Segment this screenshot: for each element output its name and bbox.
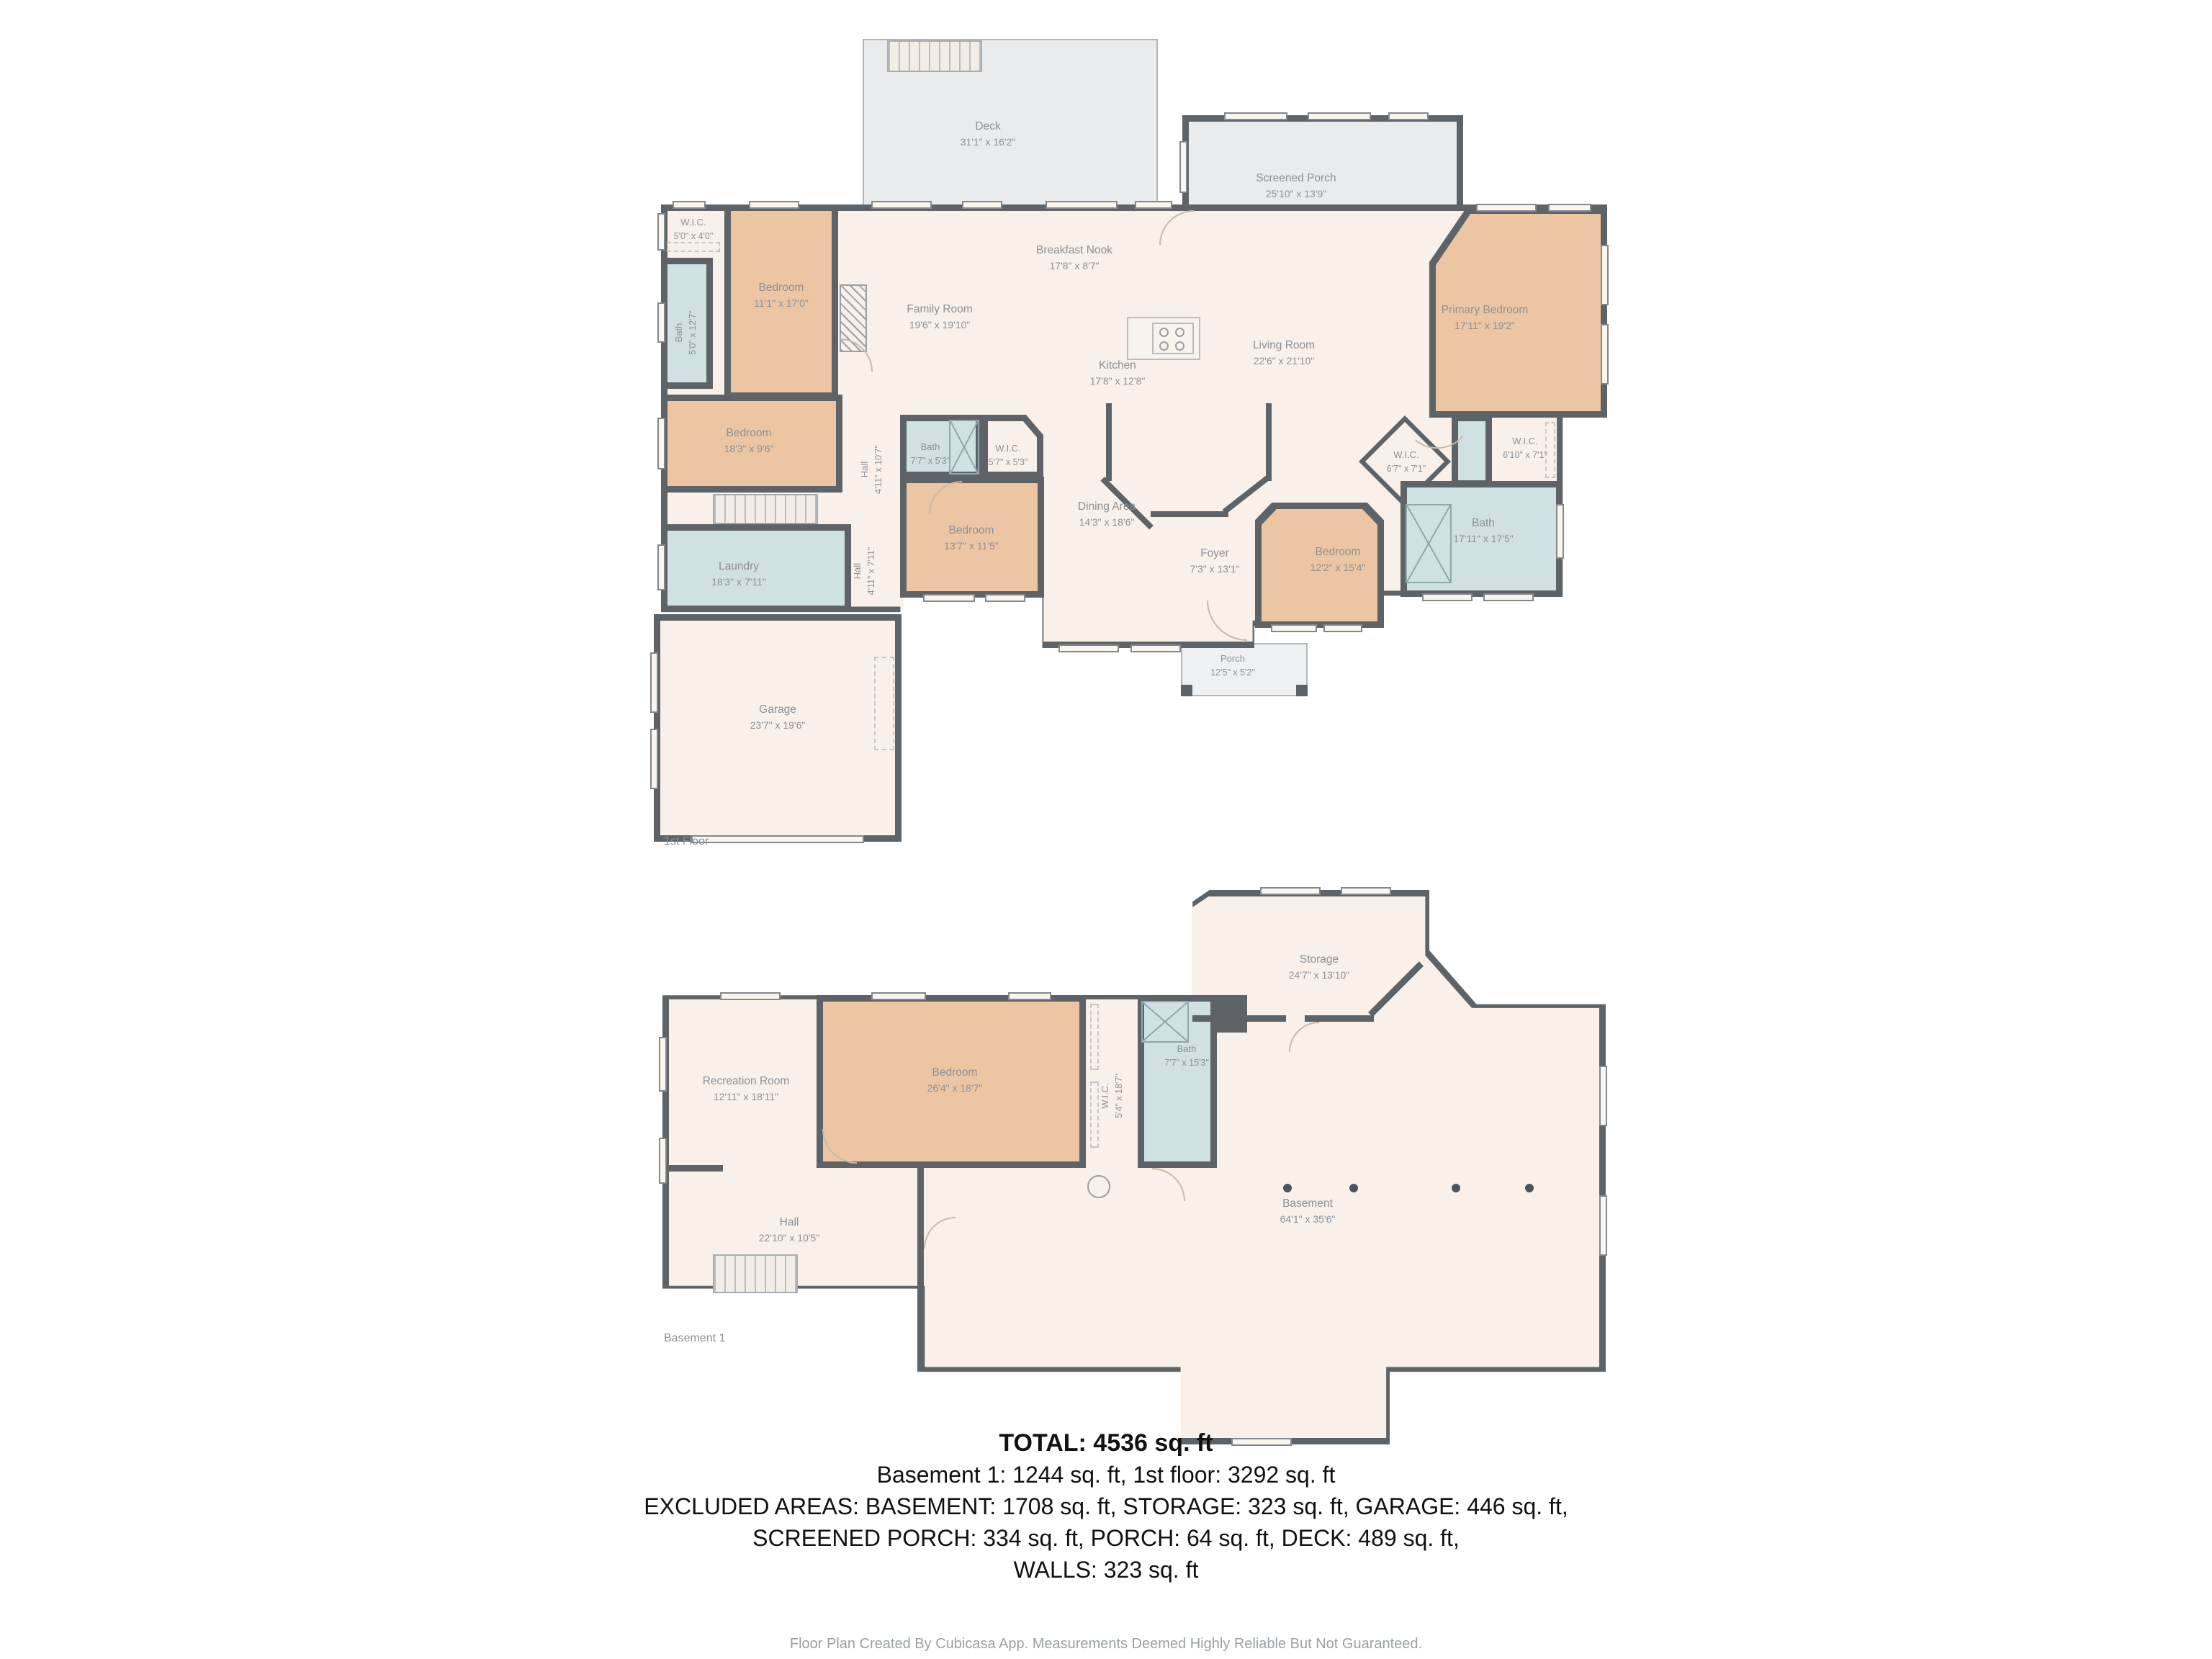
window <box>871 992 926 1000</box>
basement-wic-label: W.I.C. 5'4" x 18'7" <box>1098 1074 1125 1118</box>
bedroom-3-label: Bedroom 13'7" x 11'5" <box>944 522 999 554</box>
primary-bedroom-label: Primary Bedroom 17'11" x 19'2" <box>1442 302 1529 333</box>
window <box>1476 204 1537 212</box>
window <box>749 201 799 209</box>
window <box>1599 1195 1607 1256</box>
window <box>657 213 665 251</box>
window <box>1548 204 1591 212</box>
shower <box>949 420 979 475</box>
shower <box>1406 504 1452 583</box>
basement-body <box>662 890 1606 1444</box>
bedroom-4-label: Bedroom 12'2" x 15'4" <box>1310 544 1366 575</box>
closet-rail <box>1090 1004 1099 1070</box>
window <box>923 594 975 602</box>
foyer-label: Foyer 7'3" x 13'1" <box>1190 545 1240 577</box>
recreation-room-label: Recreation Room 12'11" x 18'11" <box>703 1073 790 1105</box>
kitchen-wall <box>1151 511 1228 517</box>
first-floor-tag: 1st Floor <box>664 835 709 848</box>
basement-floor-tag: Basement 1 <box>664 1332 725 1345</box>
floor-plan-page: Deck 31'1" x 16'2" Screened Porch 25'10"… <box>0 0 2212 1659</box>
window <box>1260 887 1321 895</box>
bedroom-2-label: Bedroom 18'3" x 9'6" <box>724 425 774 457</box>
porch-post <box>1296 685 1308 696</box>
wic-3-label: W.I.C. 6'7" x 7'1" <box>1387 448 1426 475</box>
bath-hall-strip <box>1452 415 1492 487</box>
deck-stairs <box>887 40 982 72</box>
window <box>657 544 665 590</box>
window <box>1556 504 1564 559</box>
window <box>1599 1066 1607 1126</box>
kitchen-wall <box>1266 403 1272 481</box>
total-area: TOTAL: 4536 sq. ft <box>0 1427 2212 1459</box>
storage-wall <box>1305 1015 1374 1022</box>
hall-2-label: Hall 4'11" x 7'11" <box>850 547 878 595</box>
breakfast-nook-label: Breakfast Nook 17'8" x 8'7" <box>1036 242 1112 274</box>
summary-line-4: WALLS: 323 sq. ft <box>0 1554 2212 1586</box>
window <box>1179 141 1187 193</box>
window <box>720 992 781 1000</box>
window <box>1135 201 1172 209</box>
window <box>650 729 658 789</box>
dining-area-label: Dining Area 14'3" x 18'6" <box>1078 498 1136 530</box>
summary-line-3: SCREENED PORCH: 334 sq. ft, PORCH: 64 sq… <box>0 1522 2212 1554</box>
area-summary: TOTAL: 4536 sq. ft Basement 1: 1244 sq. … <box>0 1427 2212 1586</box>
summary-line-1: Basement 1: 1244 sq. ft, 1st floor: 3292… <box>0 1459 2212 1491</box>
window <box>985 594 1025 602</box>
closet-rail <box>667 242 720 252</box>
hall-divider-wall <box>917 1168 924 1372</box>
window <box>871 201 932 209</box>
basement-hall-label: Hall 22'10" x 10'5" <box>759 1214 820 1246</box>
garage-door <box>691 835 864 843</box>
garage-storage <box>874 657 894 750</box>
window <box>1130 644 1181 652</box>
disclaimer-text: Floor Plan Created By Cubicasa App. Meas… <box>0 1636 2212 1653</box>
summary-line-2: EXCLUDED AREAS: BASEMENT: 1708 sq. ft, S… <box>0 1491 2212 1522</box>
wall-chunk <box>1217 995 1247 1033</box>
window <box>1046 201 1118 209</box>
stove-burner <box>1175 328 1184 337</box>
bedroom-1-label: Bedroom 11'1" x 17'0" <box>754 279 809 311</box>
window <box>1008 992 1051 1000</box>
bath-1-label: Bath 5'0" x 12'7" <box>672 310 699 355</box>
window <box>659 1138 667 1184</box>
bath-big-label: Bath 17'11" x 17'5" <box>1453 515 1514 547</box>
support-column <box>1525 1184 1534 1192</box>
wic-4-label: W.I.C. 6'10" x 7'1" <box>1503 434 1547 462</box>
window <box>1483 593 1534 601</box>
support-column <box>1349 1184 1358 1192</box>
family-room-label: Family Room 19'6" x 19'10" <box>907 301 972 333</box>
support-column <box>1283 1184 1292 1192</box>
living-room-label: Living Room 22'6" x 21'10" <box>1253 337 1315 369</box>
kitchen-wall <box>1106 403 1112 481</box>
window <box>1601 324 1609 385</box>
basement-bath-label: Bath 7'7" x 15'3" <box>1164 1042 1209 1069</box>
window <box>657 302 665 343</box>
window <box>1601 245 1609 305</box>
screened-porch-label: Screened Porch 25'10" x 13'9" <box>1256 170 1336 202</box>
laundry-label: Laundry 18'3" x 7'11" <box>711 558 766 590</box>
window <box>1224 112 1287 120</box>
window <box>1422 593 1473 601</box>
window <box>1323 624 1362 632</box>
storage-label: Storage 24'7" x 13'10" <box>1289 951 1350 983</box>
wic-1-label: W.I.C. 5'0" x 4'0" <box>674 215 714 243</box>
window <box>657 418 665 469</box>
window <box>659 1037 667 1092</box>
wic-2-label: W.I.C. 5'7" x 5'3" <box>989 441 1028 469</box>
stove-burner <box>1159 341 1169 351</box>
garage-label: Garage 23'7" x 19'6" <box>750 701 806 733</box>
storage-wall <box>1192 1015 1286 1022</box>
porch-post <box>1181 685 1192 696</box>
basement-interior <box>669 896 1599 1438</box>
deck-label: Deck 31'1" x 16'2" <box>961 118 1016 150</box>
basement-stairs <box>713 1254 798 1293</box>
rec-room-wall <box>662 1165 723 1172</box>
porch-label: Porch 12'5" x 5'2" <box>1210 652 1255 679</box>
support-column <box>1452 1184 1460 1192</box>
window <box>1388 112 1429 120</box>
window <box>962 201 1002 209</box>
stairs-to-basement <box>713 494 818 524</box>
window <box>1341 887 1391 895</box>
window <box>1308 112 1371 120</box>
hall-1-label: Hall 4'11" x 10'7" <box>858 445 885 494</box>
bath-2-label: Bath 7'7" x 5'3" <box>911 440 950 467</box>
basement-label: Basement 64'1" x 35'6" <box>1280 1195 1336 1227</box>
kitchen-label: Kitchen 17'8" x 12'8" <box>1090 357 1146 389</box>
basement-bedroom-label: Bedroom 26'4" x 18'7" <box>927 1064 983 1096</box>
stove-burner <box>1159 328 1169 337</box>
stove <box>1152 323 1194 354</box>
electrical-symbol <box>1087 1175 1110 1198</box>
stove-burner <box>1175 341 1184 351</box>
shower <box>1141 1001 1189 1043</box>
window <box>1058 644 1119 652</box>
window <box>1271 624 1317 632</box>
window <box>650 652 658 713</box>
window <box>673 201 706 209</box>
